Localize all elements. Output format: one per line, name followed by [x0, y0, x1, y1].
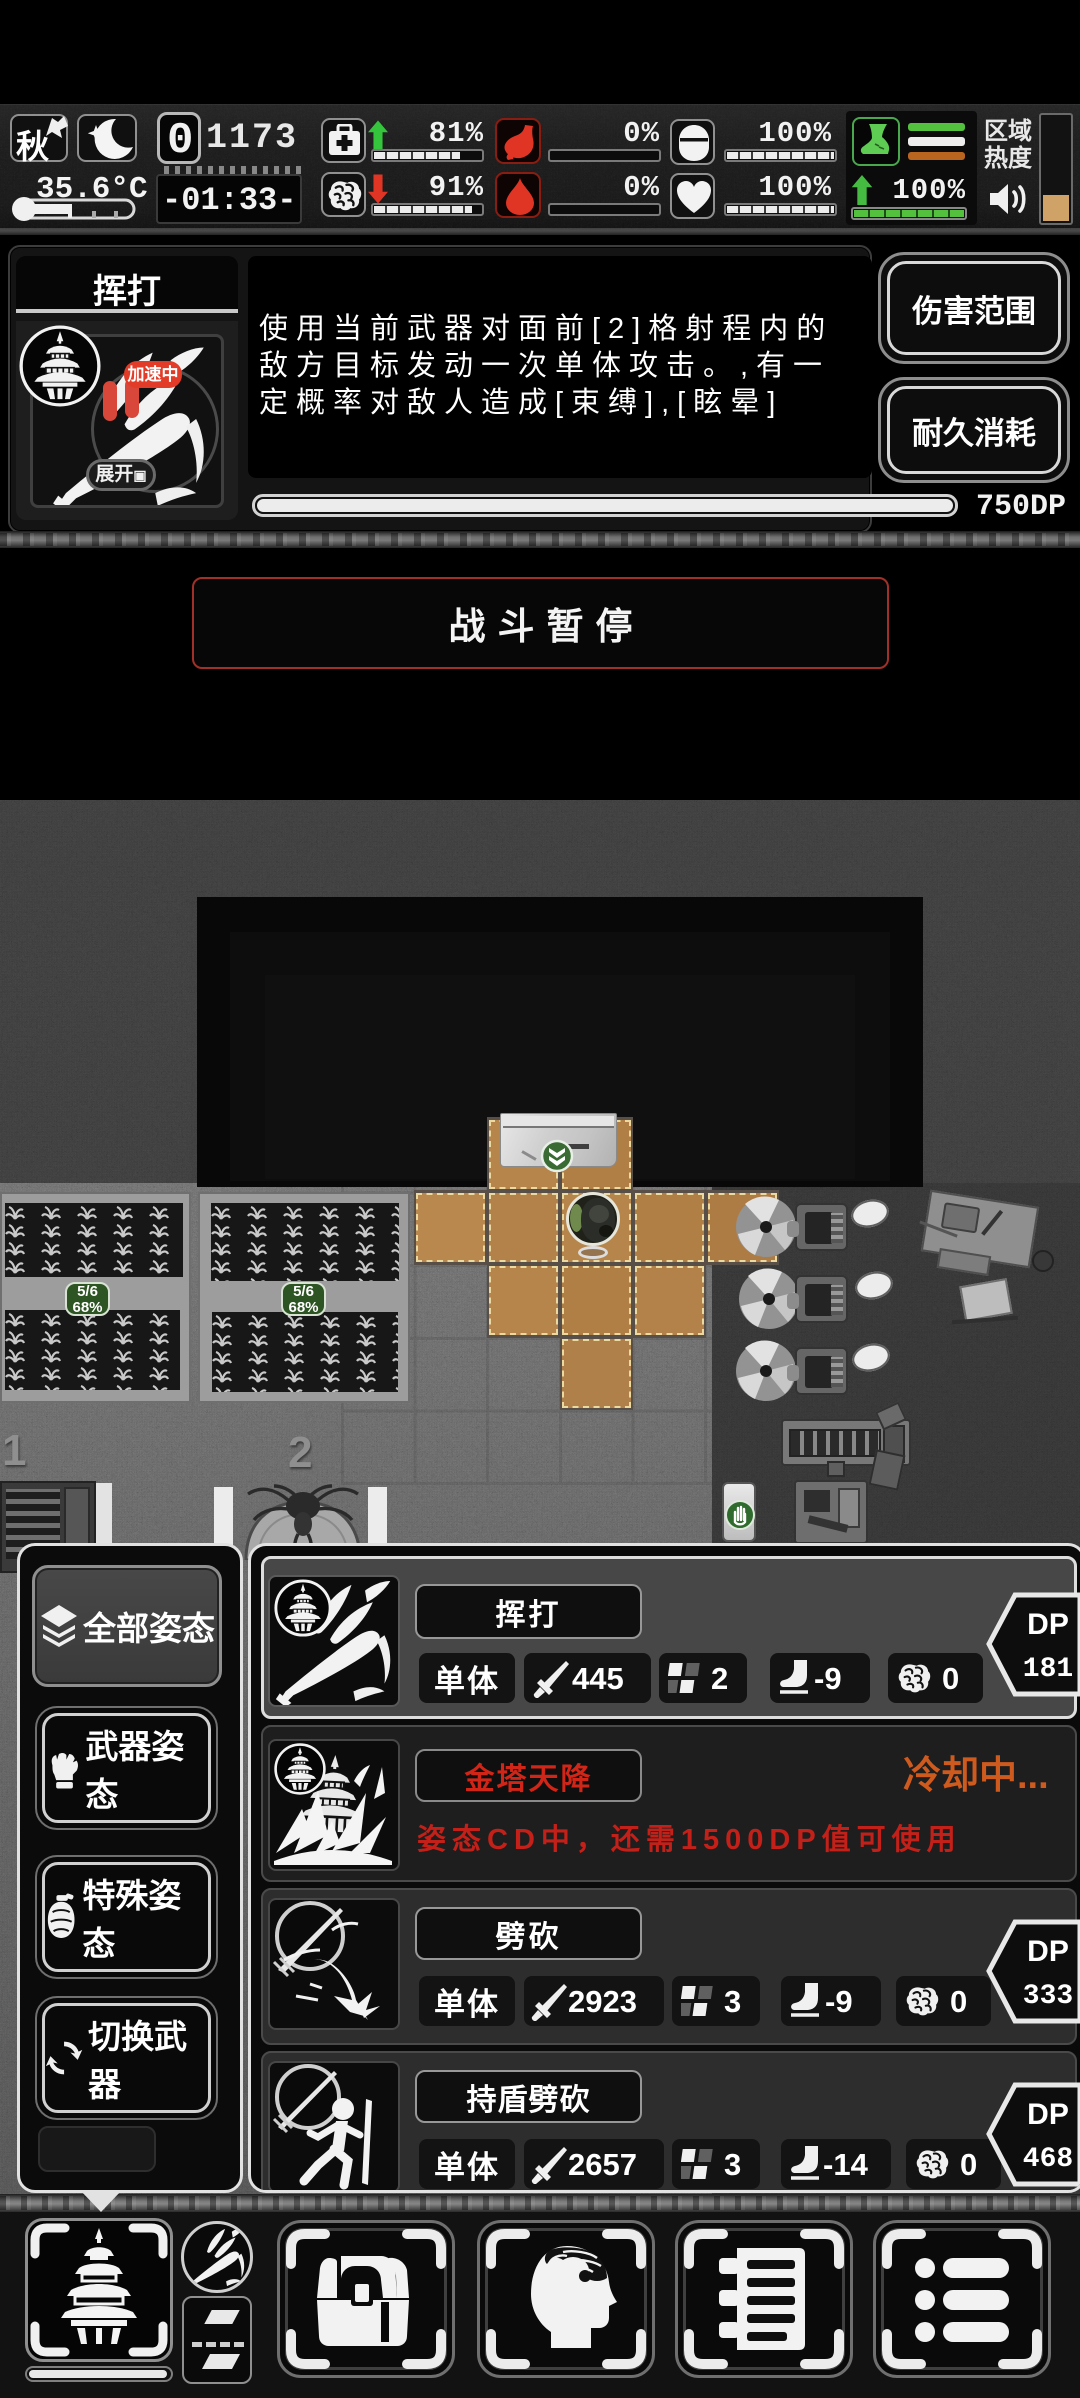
svg-text:468: 468: [1023, 2144, 1073, 2175]
svg-text:DP: DP: [1027, 1608, 1069, 1641]
svg-text:DP: DP: [1027, 2098, 1069, 2131]
svg-text:181: 181: [1023, 1654, 1073, 1685]
svg-text:DP: DP: [1027, 1935, 1069, 1968]
svg-text:333: 333: [1023, 1981, 1073, 2012]
